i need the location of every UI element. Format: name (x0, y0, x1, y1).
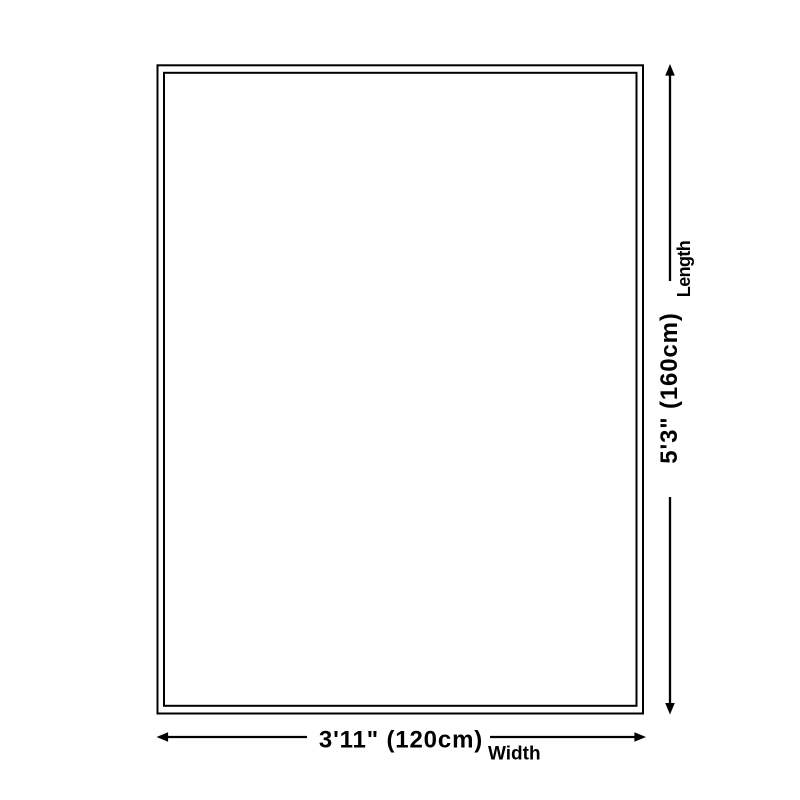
svg-text:3'11" (120cm): 3'11" (120cm) (319, 727, 483, 754)
svg-text:Width: Width (488, 744, 541, 765)
svg-text:5'3" (160cm): 5'3" (160cm) (656, 312, 683, 463)
svg-text:Length: Length (674, 241, 694, 297)
